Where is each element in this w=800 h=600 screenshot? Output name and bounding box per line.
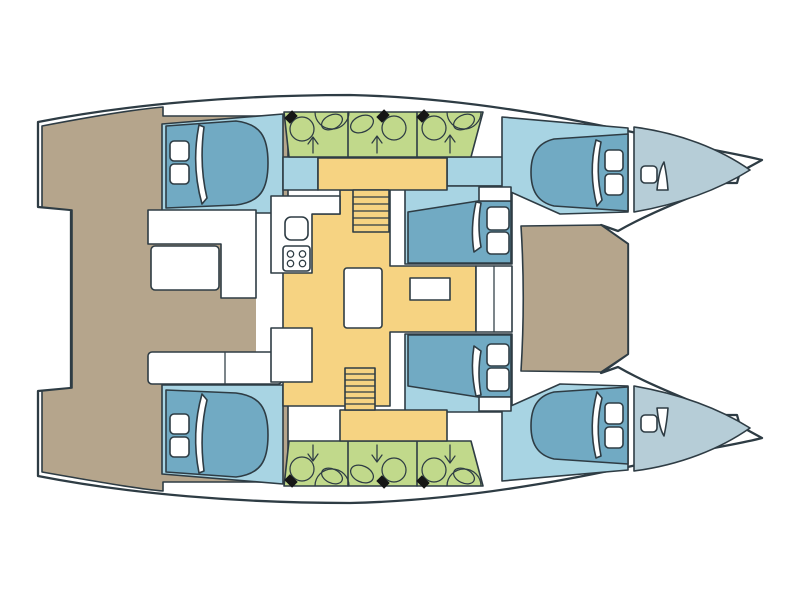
- pillow: [605, 150, 623, 171]
- bed-bow-starboard: [531, 387, 628, 464]
- bed-bow-port: [531, 134, 628, 211]
- pillow: [487, 207, 509, 230]
- duvet-fold-icon: [472, 202, 481, 252]
- pillow: [487, 344, 509, 366]
- pillow: [605, 403, 623, 424]
- aft-bench: [148, 352, 282, 384]
- page: [0, 0, 800, 600]
- pillow: [170, 141, 189, 161]
- headboard-shelf-starboard: [479, 397, 511, 411]
- bow-hatch-icon: [641, 166, 657, 183]
- nav-seat: [271, 328, 312, 382]
- duvet-fold-icon: [472, 346, 481, 396]
- galley-stove: [283, 246, 310, 271]
- salon-table: [344, 268, 382, 328]
- pillow: [170, 414, 189, 434]
- cockpit-table: [151, 246, 219, 290]
- pillow: [605, 427, 623, 448]
- hull-landing-starboard: [340, 410, 447, 441]
- port-hull-corridor-aft: [283, 157, 318, 190]
- plan-root: [38, 95, 762, 503]
- pillow: [605, 174, 623, 195]
- galley-sink: [285, 217, 308, 240]
- pillow: [170, 164, 189, 184]
- port-hull-corridor-fwd: [447, 157, 510, 186]
- catamaran-floor-plan: [0, 0, 800, 600]
- pillow: [487, 368, 509, 391]
- pillow: [170, 437, 189, 457]
- bow-hatch-icon: [641, 415, 657, 432]
- hull-landing-port: [318, 158, 447, 190]
- headboard-shelf-port: [479, 187, 511, 201]
- seat-island: [410, 278, 450, 300]
- pillow: [487, 232, 509, 254]
- foredeck: [521, 225, 628, 372]
